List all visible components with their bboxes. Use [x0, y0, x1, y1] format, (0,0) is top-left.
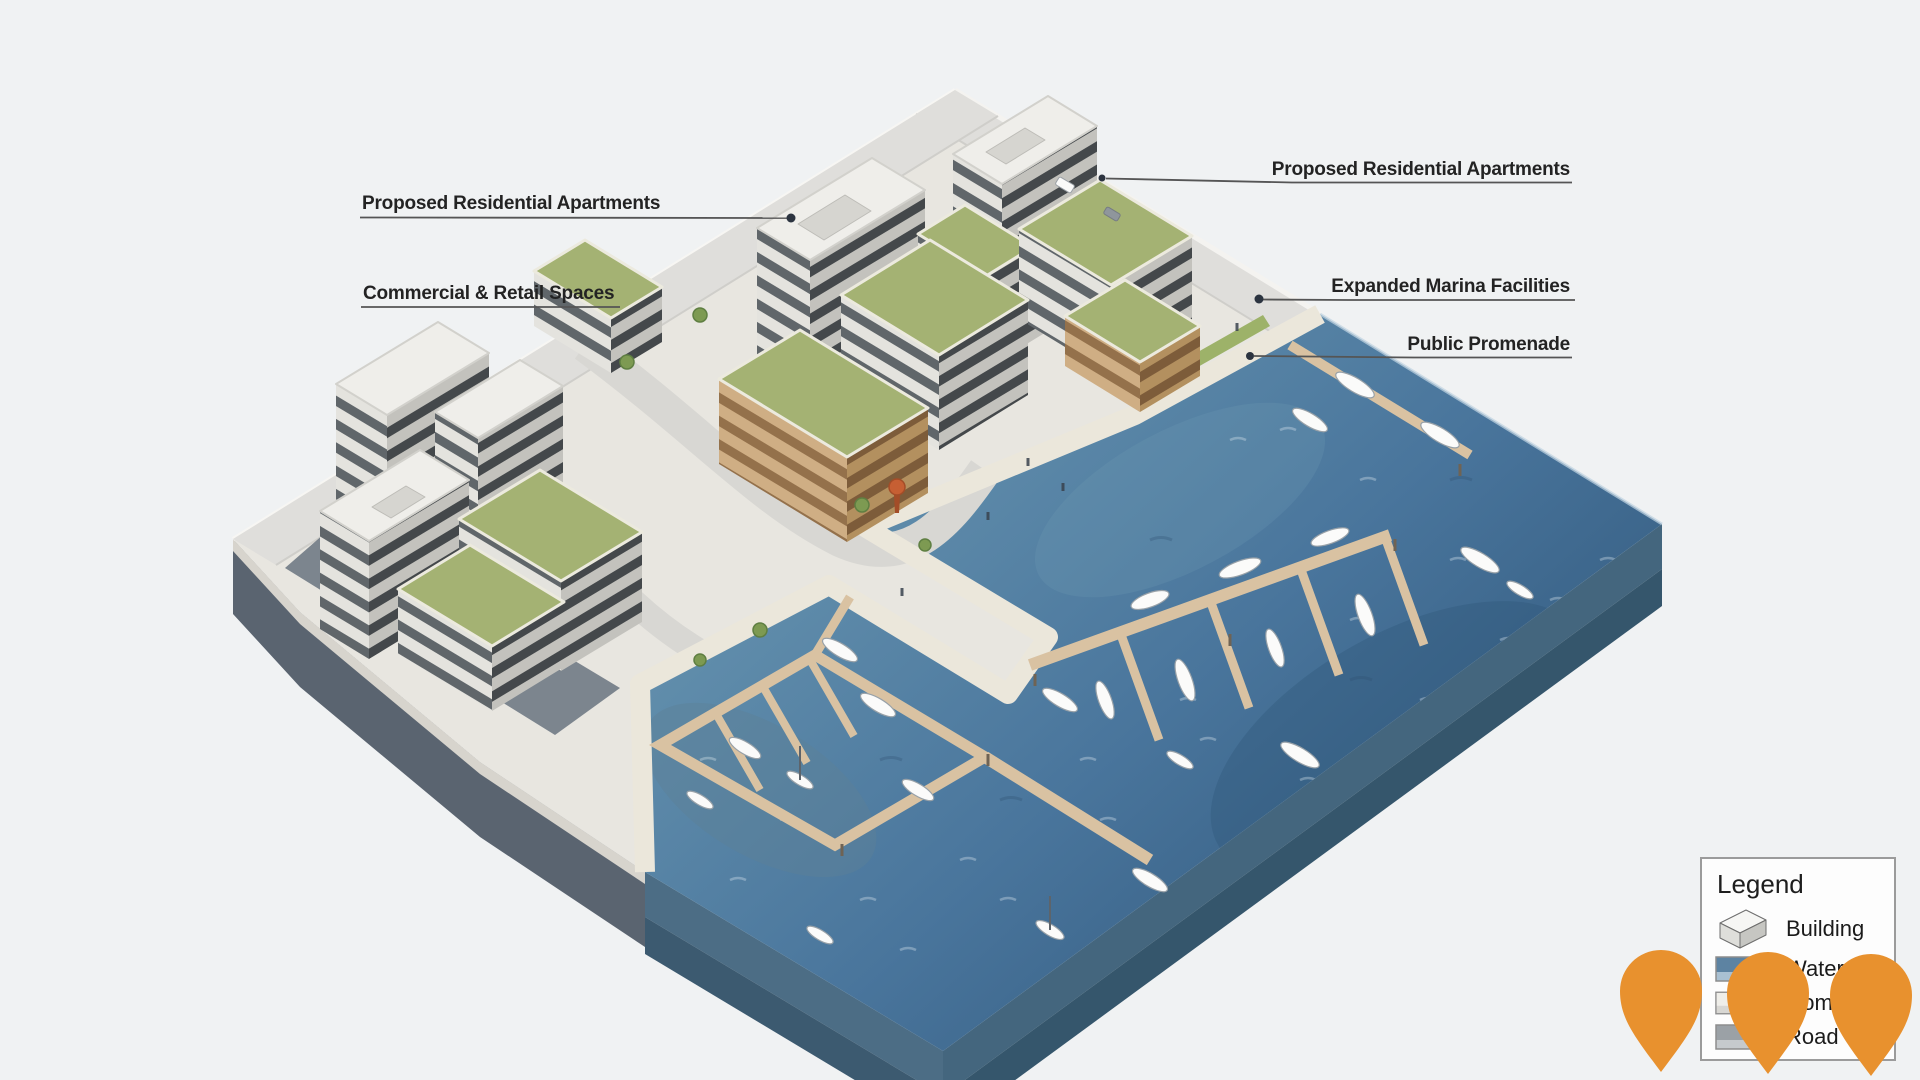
legend-label-building: Building [1786, 916, 1864, 942]
promenade-swatch [1715, 990, 1765, 1016]
legend-item-building: Building [1715, 906, 1894, 952]
legend-item-promenade: Promenade [1715, 990, 1894, 1016]
legend-panel: Legend Building Water Promenade Road [1700, 857, 1896, 1061]
legend-item-road: Road [1715, 1024, 1894, 1050]
legend-label-promenade: Promenade [1780, 990, 1894, 1016]
legend-title: Legend [1717, 869, 1894, 900]
annotation-label: Public Promenade [1407, 334, 1570, 355]
annotation-label: Expanded Marina Facilities [1331, 276, 1570, 297]
legend-item-water: Water [1715, 956, 1894, 982]
building-icon [1715, 906, 1771, 952]
legend-label-road: Road [1786, 1024, 1839, 1050]
legend-label-water: Water [1786, 956, 1844, 982]
water-swatch [1715, 956, 1771, 982]
annotation-label: Proposed Residential Apartments [1272, 159, 1570, 180]
site-illustration: Proposed Residential Apartments Commerci… [0, 0, 1920, 1080]
annotation-label: Commercial & Retail Spaces [363, 283, 614, 304]
master-plan-screenshot: Proposed Residential Apartments Commerci… [0, 0, 1920, 1080]
annotation-label: Proposed Residential Apartments [362, 193, 660, 214]
road-swatch [1715, 1024, 1771, 1050]
annotation-commercial-retail: Commercial & Retail Spaces [361, 283, 620, 307]
